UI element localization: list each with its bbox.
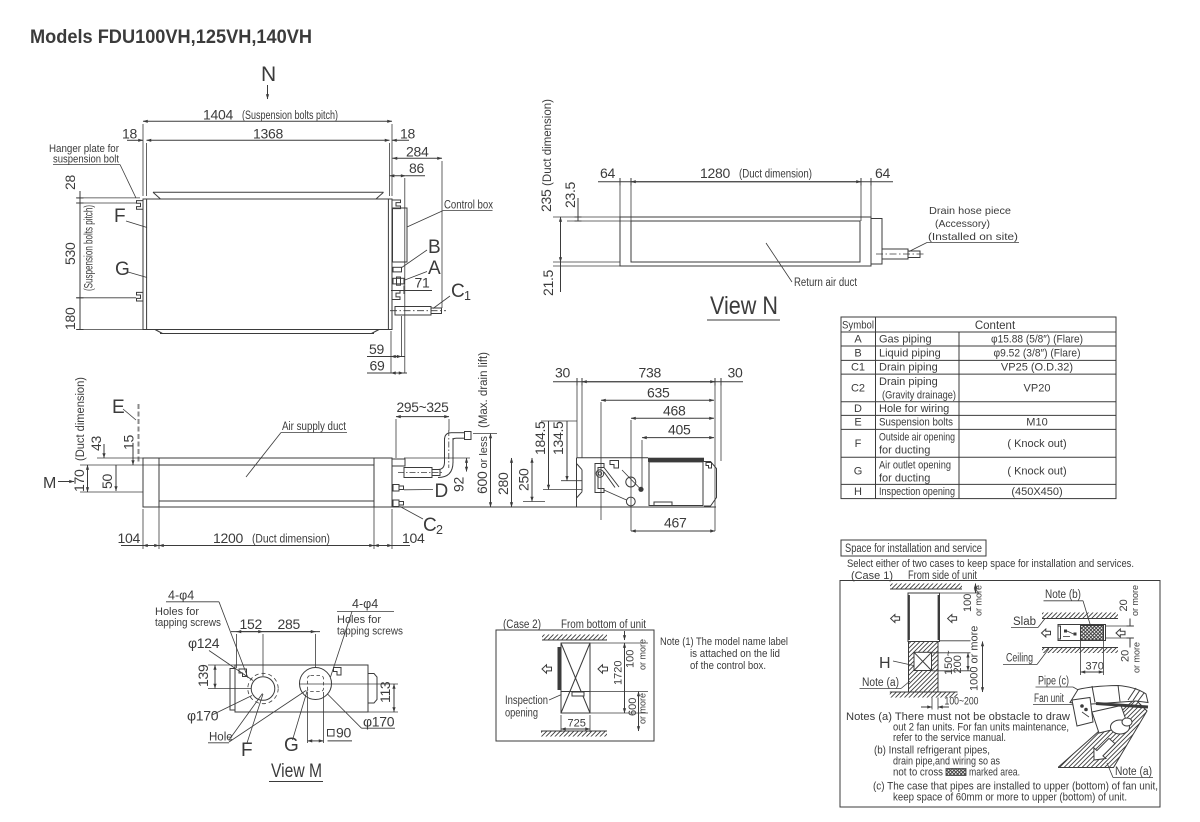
- svg-text:φ15.88 (5/8″) (Flare): φ15.88 (5/8″) (Flare): [991, 334, 1083, 346]
- svg-text:30: 30: [555, 365, 570, 381]
- svg-text:1200: 1200: [213, 530, 243, 546]
- svg-text:104: 104: [118, 530, 141, 546]
- svg-text:180: 180: [62, 307, 78, 330]
- svg-text:φ170: φ170: [363, 714, 395, 730]
- svg-text:VP20: VP20: [1024, 383, 1051, 395]
- svg-text:E: E: [112, 397, 125, 418]
- svg-text:A: A: [854, 334, 862, 346]
- svg-text:suspension bolt: suspension bolt: [53, 154, 119, 166]
- svg-text:Holes for: Holes for: [337, 614, 381, 626]
- svg-text:N: N: [261, 63, 276, 86]
- svg-text:G: G: [115, 259, 130, 280]
- svg-text:Inspection: Inspection: [505, 695, 548, 707]
- svg-text:G: G: [284, 735, 299, 756]
- svg-text:(Duct dimension): (Duct dimension): [75, 377, 87, 461]
- svg-text:marked area.: marked area.: [969, 767, 1020, 779]
- svg-text:86: 86: [409, 160, 424, 176]
- svg-text:C2: C2: [851, 383, 865, 395]
- svg-text:1000 or more: 1000 or more: [969, 626, 981, 691]
- svg-text:Return air duct: Return air duct: [794, 277, 858, 289]
- svg-text:1720: 1720: [613, 661, 625, 685]
- svg-text:G: G: [854, 466, 863, 478]
- svg-text:152: 152: [240, 616, 263, 632]
- svg-text:(Installed on site): (Installed on site): [928, 231, 1018, 243]
- svg-text:(Max. drain lift): (Max. drain lift): [478, 352, 490, 428]
- svg-text:1: 1: [464, 289, 471, 303]
- svg-text:104: 104: [402, 530, 425, 546]
- svg-text:90: 90: [336, 725, 351, 741]
- svg-text:H: H: [879, 655, 891, 672]
- svg-text:M10: M10: [1026, 417, 1047, 429]
- svg-text:D: D: [854, 403, 862, 415]
- svg-text:4-φ4: 4-φ4: [352, 597, 378, 611]
- svg-text:opening: opening: [505, 708, 538, 720]
- svg-text:F: F: [855, 438, 862, 450]
- svg-text:134.5: 134.5: [550, 421, 566, 455]
- svg-text:295~325: 295~325: [397, 399, 450, 415]
- svg-text:23.5: 23.5: [562, 181, 578, 208]
- svg-text:C1: C1: [851, 362, 865, 374]
- svg-text:Fan unit: Fan unit: [1034, 693, 1065, 705]
- svg-text:(Gravity drainage): (Gravity drainage): [882, 390, 956, 402]
- svg-text:Drain piping: Drain piping: [879, 362, 938, 374]
- svg-text:Gas piping: Gas piping: [879, 334, 932, 346]
- svg-text:530: 530: [62, 242, 78, 265]
- svg-text:43: 43: [88, 436, 104, 451]
- svg-text:C: C: [423, 515, 437, 536]
- svg-text:(Duct dimension): (Duct dimension): [739, 169, 812, 181]
- svg-text:725: 725: [568, 718, 586, 730]
- svg-text:( Knock out): ( Knock out): [1007, 438, 1066, 450]
- svg-text:Liquid piping: Liquid piping: [879, 348, 941, 360]
- svg-text:(450X450): (450X450): [1011, 486, 1062, 498]
- svg-text:738: 738: [639, 365, 662, 381]
- svg-text:18: 18: [122, 126, 137, 142]
- svg-text:or more: or more: [1130, 585, 1140, 616]
- svg-text:Note (a): Note (a): [862, 677, 899, 689]
- svg-text:Ceiling: Ceiling: [1006, 653, 1033, 665]
- svg-text:Symbol: Symbol: [842, 320, 874, 332]
- svg-text:64: 64: [600, 165, 615, 181]
- svg-text:Note (b): Note (b): [1045, 589, 1081, 601]
- svg-text:Note (a): Note (a): [1115, 766, 1152, 778]
- svg-text:F: F: [241, 740, 253, 761]
- svg-text:Content: Content: [975, 320, 1016, 332]
- svg-text:100: 100: [962, 594, 974, 612]
- svg-text:69: 69: [370, 358, 385, 374]
- svg-text:1404: 1404: [203, 107, 233, 123]
- svg-text:28: 28: [62, 175, 78, 190]
- svg-text:100: 100: [625, 650, 637, 668]
- svg-text:59: 59: [369, 341, 384, 357]
- svg-text:467: 467: [664, 515, 687, 531]
- svg-text:184.5: 184.5: [532, 421, 548, 455]
- svg-text:468: 468: [663, 403, 686, 419]
- svg-text:for ducting: for ducting: [879, 473, 930, 485]
- svg-text:Space for installation and ser: Space for installation and service: [845, 543, 982, 555]
- svg-text:H: H: [854, 486, 862, 498]
- svg-text:(Duct dimension): (Duct dimension): [252, 534, 330, 546]
- svg-text:280: 280: [495, 472, 511, 495]
- svg-text:for ducting: for ducting: [879, 445, 930, 457]
- svg-text:Suspension bolts: Suspension bolts: [879, 417, 953, 429]
- svg-text:20: 20: [1120, 650, 1132, 662]
- svg-text:Drain piping: Drain piping: [879, 376, 938, 388]
- svg-text:Air outlet opening: Air outlet opening: [879, 460, 951, 472]
- svg-text:20: 20: [1118, 599, 1130, 611]
- svg-text:B: B: [854, 348, 861, 360]
- svg-text:285: 285: [278, 616, 301, 632]
- svg-text:Hole for wiring: Hole for wiring: [879, 403, 949, 415]
- svg-text:C: C: [451, 281, 465, 302]
- svg-text:A: A: [428, 258, 441, 279]
- svg-text:tapping screws: tapping screws: [155, 617, 221, 629]
- svg-text:Air supply duct: Air supply duct: [282, 421, 347, 433]
- svg-text:or more: or more: [1132, 642, 1142, 673]
- svg-text:18: 18: [400, 126, 415, 142]
- svg-text:71: 71: [415, 275, 430, 291]
- svg-text:Select either of two cases to: Select either of two cases to keep space…: [847, 558, 1134, 570]
- svg-text:not to cross: not to cross: [893, 767, 943, 779]
- svg-text:View M: View M: [271, 761, 322, 782]
- svg-text:2: 2: [436, 523, 443, 537]
- svg-text:tapping screws: tapping screws: [337, 626, 403, 638]
- svg-text:250: 250: [516, 468, 532, 491]
- svg-text:E: E: [854, 417, 861, 429]
- svg-text:4-φ4: 4-φ4: [168, 589, 194, 603]
- svg-text:keep space of 60mm or more to: keep space of 60mm or more to upper (bot…: [893, 792, 1127, 804]
- svg-text:From bottom of unit: From bottom of unit: [561, 619, 647, 631]
- svg-text:VP25 (O.D.32): VP25 (O.D.32): [1001, 362, 1073, 374]
- svg-text:Control box: Control box: [444, 200, 493, 212]
- svg-text:D: D: [435, 481, 449, 502]
- svg-text:(Suspension bolts pitch): (Suspension bolts pitch): [84, 205, 96, 291]
- svg-text:284: 284: [406, 144, 429, 160]
- svg-text:refer to the service manual.: refer to the service manual.: [893, 732, 1006, 744]
- svg-text:635: 635: [647, 385, 670, 401]
- svg-text:(Suspension bolts pitch): (Suspension bolts pitch): [242, 110, 338, 122]
- svg-text:(Accessory): (Accessory): [935, 218, 990, 230]
- svg-text:50: 50: [99, 474, 115, 489]
- svg-text:of the control box.: of the control box.: [690, 660, 766, 672]
- svg-text:92: 92: [451, 477, 467, 492]
- svg-text:Inspection opening: Inspection opening: [879, 486, 955, 498]
- svg-text:139: 139: [195, 664, 211, 687]
- svg-text:or more: or more: [638, 639, 648, 670]
- svg-text:φ170: φ170: [187, 708, 219, 724]
- svg-text:15: 15: [121, 435, 137, 450]
- svg-text:( Knock out): ( Knock out): [1007, 466, 1066, 478]
- svg-text:100~200: 100~200: [945, 696, 979, 708]
- svg-text:21.5: 21.5: [540, 269, 556, 296]
- svg-text:Models FDU100VH,125VH,140VH: Models FDU100VH,125VH,140VH: [30, 27, 312, 48]
- svg-text:Note (1) The model name label: Note (1) The model name label: [660, 636, 788, 648]
- svg-text:1368: 1368: [253, 126, 283, 142]
- svg-text:64: 64: [875, 165, 890, 181]
- svg-text:(Case 2): (Case 2): [503, 619, 541, 631]
- svg-text:30: 30: [728, 365, 743, 381]
- svg-text:Slab: Slab: [1013, 616, 1036, 628]
- svg-text:Drain hose piece: Drain hose piece: [929, 205, 1011, 217]
- svg-text:φ124: φ124: [188, 635, 220, 651]
- svg-text:F: F: [114, 206, 126, 227]
- svg-text:M: M: [43, 475, 56, 492]
- svg-text:370: 370: [1086, 661, 1104, 673]
- svg-text:Pipe (c): Pipe (c): [1038, 676, 1069, 688]
- svg-text:1280: 1280: [700, 165, 730, 181]
- svg-text:View N: View N: [710, 292, 778, 320]
- svg-text:φ9.52 (3/8″) (Flare): φ9.52 (3/8″) (Flare): [994, 348, 1081, 360]
- svg-text:B: B: [428, 237, 441, 258]
- svg-text:is attached on the lid: is attached on the lid: [690, 648, 780, 660]
- svg-text:170: 170: [71, 469, 87, 492]
- svg-text:Outside air opening: Outside air opening: [879, 432, 955, 444]
- svg-text:405: 405: [668, 422, 691, 438]
